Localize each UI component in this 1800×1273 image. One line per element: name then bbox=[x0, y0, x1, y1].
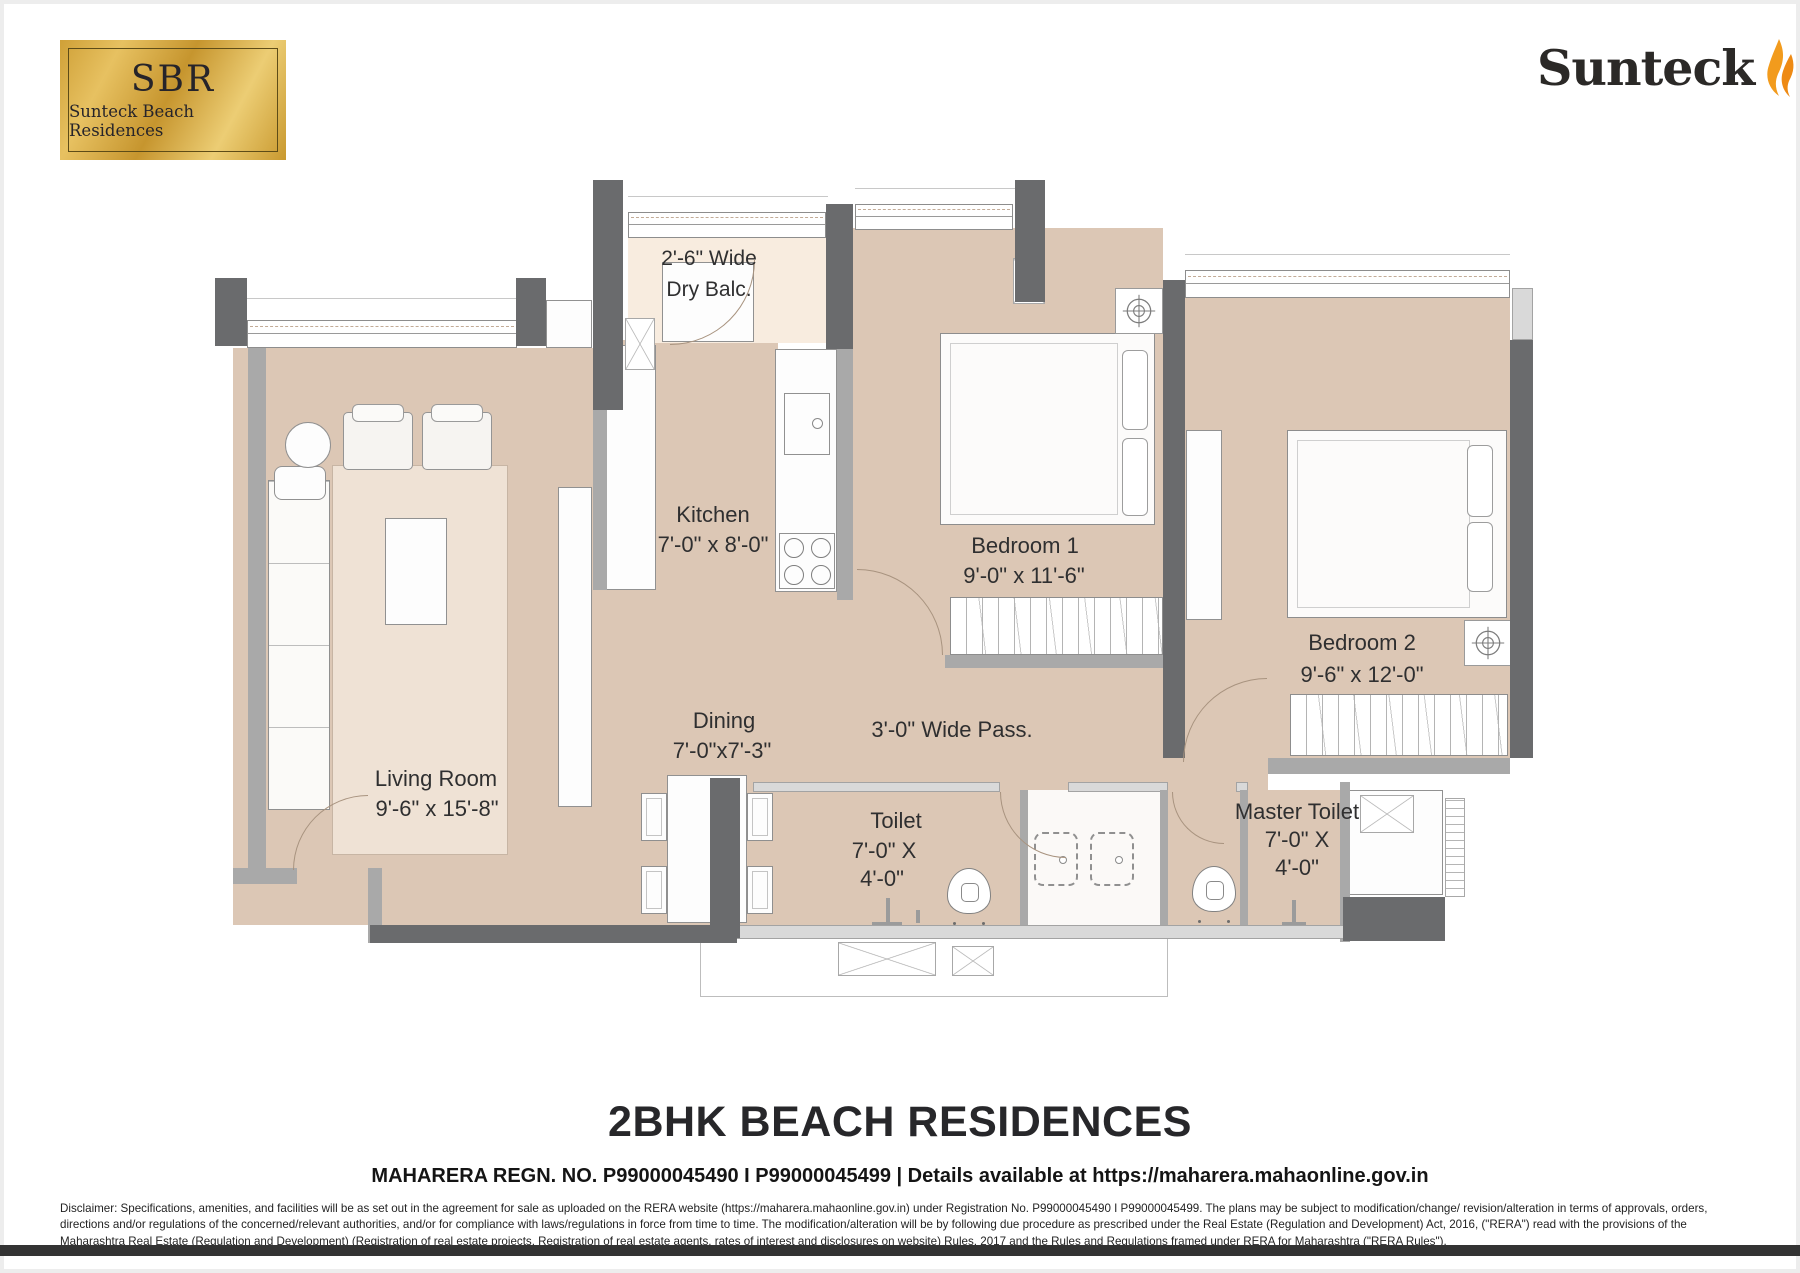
living-room-size: 9'-6" x 15'-8" bbox=[375, 796, 498, 822]
dining-chair bbox=[641, 793, 667, 841]
master-toilet-label: Master Toilet bbox=[1227, 798, 1367, 826]
dry-balcony-window bbox=[628, 212, 826, 238]
wc-seat bbox=[961, 883, 979, 902]
wall-column bbox=[215, 278, 247, 346]
wall bbox=[710, 778, 740, 938]
wall-column bbox=[826, 204, 853, 349]
armchair-2 bbox=[422, 412, 492, 470]
disclaimer-text: Disclaimer: Specifications, amenities, a… bbox=[60, 1201, 1742, 1250]
wall bbox=[370, 925, 737, 943]
passage-label: 3'-0" Wide Pass. bbox=[871, 717, 1032, 743]
wall bbox=[1160, 790, 1168, 937]
wall-column bbox=[593, 180, 623, 410]
wc-bolt bbox=[1198, 920, 1201, 923]
bedroom2-label: Bedroom 2 bbox=[1308, 630, 1416, 656]
coffee-table bbox=[385, 518, 447, 625]
faucet-icon bbox=[886, 898, 890, 922]
pillow bbox=[1467, 522, 1493, 592]
bedroom1-wardrobe bbox=[950, 597, 1163, 655]
toilet-wc bbox=[947, 868, 991, 928]
master-toilet-size1: 7'-0" X bbox=[1227, 826, 1367, 854]
brochure-page: SBR Sunteck Beach Residences Sunteck bbox=[0, 0, 1800, 1273]
master-toilet-size2: 4'-0" bbox=[1227, 854, 1367, 882]
ac-crosshair-icon bbox=[1121, 293, 1157, 329]
wc-seat bbox=[1206, 881, 1224, 900]
tv-unit bbox=[558, 487, 592, 807]
hob-burner-icon bbox=[784, 538, 804, 558]
wall bbox=[945, 655, 1163, 668]
bedroom1-label: Bedroom 1 bbox=[971, 533, 1079, 559]
dining-label: Dining bbox=[693, 708, 755, 734]
armchair-1 bbox=[343, 412, 413, 470]
wall bbox=[233, 868, 297, 884]
bedroom2-ac-unit bbox=[1464, 620, 1511, 666]
wall bbox=[248, 348, 266, 868]
shaft-box bbox=[546, 300, 592, 348]
bedroom1-window bbox=[855, 204, 1013, 230]
toilet-size2: 4'-0" bbox=[860, 866, 904, 892]
duct-x-box bbox=[1360, 795, 1414, 833]
wall-column bbox=[1163, 280, 1185, 758]
wall-column bbox=[1015, 180, 1045, 302]
wash-basin bbox=[1090, 832, 1134, 886]
bedroom2-window bbox=[1185, 270, 1510, 298]
rera-registration-line: MAHARERA REGN. NO. P99000045490 I P99000… bbox=[371, 1165, 1428, 1188]
pillow bbox=[1122, 350, 1148, 430]
wall bbox=[1268, 758, 1510, 774]
ledge-line-drybalc bbox=[628, 196, 828, 197]
shaft-x-box bbox=[625, 318, 655, 370]
balcony-x-box bbox=[952, 946, 994, 976]
wall bbox=[593, 410, 607, 590]
faucet-icon bbox=[916, 910, 920, 923]
wall bbox=[837, 345, 853, 600]
dining-size: 7'-0"x7'-3" bbox=[673, 738, 772, 764]
toilet-size1: 7'-0" X bbox=[852, 838, 917, 864]
kitchen-size: 7'-0" x 8'-0" bbox=[658, 532, 769, 558]
hob-burner-icon bbox=[811, 538, 831, 558]
toilet-label: Toilet bbox=[870, 808, 921, 834]
dry-balcony-label2: Dry Balc. bbox=[666, 277, 751, 303]
wall bbox=[1068, 782, 1168, 792]
bedroom2-wardrobe bbox=[1290, 694, 1508, 756]
wall-column bbox=[1510, 340, 1533, 758]
wall-cap bbox=[1512, 288, 1533, 340]
dry-balcony-label: 2'-6" Wide bbox=[661, 246, 757, 272]
service-block bbox=[1343, 897, 1445, 941]
faucet-icon bbox=[1292, 900, 1296, 922]
wall-column bbox=[516, 278, 546, 346]
dining-chair bbox=[641, 866, 667, 914]
kitchen-sink bbox=[784, 393, 830, 455]
floor-plan: 2'-6" Wide Dry Balc. Kitchen 7'-0" x 8'-… bbox=[0, 0, 1800, 1273]
hob-burner-icon bbox=[784, 565, 804, 585]
pillow bbox=[1122, 438, 1148, 516]
plan-title: 2BHK BEACH RESIDENCES bbox=[608, 1098, 1192, 1147]
bedroom2-cabinet bbox=[1186, 430, 1222, 620]
side-table-round bbox=[285, 422, 331, 468]
wall bbox=[753, 782, 1000, 792]
bedroom1-ac-unit bbox=[1115, 288, 1163, 334]
pillow bbox=[1467, 445, 1493, 517]
louver-strip bbox=[1445, 798, 1465, 897]
wc-bolt bbox=[1227, 920, 1230, 923]
sofa-armrest bbox=[274, 466, 326, 500]
ac-crosshair-icon bbox=[1470, 625, 1506, 661]
balcony-x-box bbox=[838, 942, 936, 976]
dining-chair bbox=[747, 866, 773, 914]
sofa bbox=[268, 480, 330, 810]
dining-chair bbox=[747, 793, 773, 841]
ledge-line-bedroom2 bbox=[1185, 254, 1510, 255]
ledge-line-living bbox=[233, 298, 516, 299]
wall bbox=[737, 925, 1347, 939]
kitchen-label: Kitchen bbox=[676, 502, 749, 528]
ledge-line-bedroom1 bbox=[855, 188, 1015, 189]
living-window bbox=[247, 320, 517, 348]
master-toilet-labels: Master Toilet 7'-0" X 4'-0" bbox=[1227, 798, 1367, 882]
hob-burner-icon bbox=[811, 565, 831, 585]
sink-drain-icon bbox=[812, 418, 823, 429]
living-room-label: Living Room bbox=[375, 766, 497, 792]
bedroom1-size: 9'-0" x 11'-6" bbox=[963, 563, 1084, 589]
bedroom2-size: 9'-6" x 12'-0" bbox=[1300, 662, 1423, 688]
bottom-rule bbox=[0, 1245, 1800, 1256]
